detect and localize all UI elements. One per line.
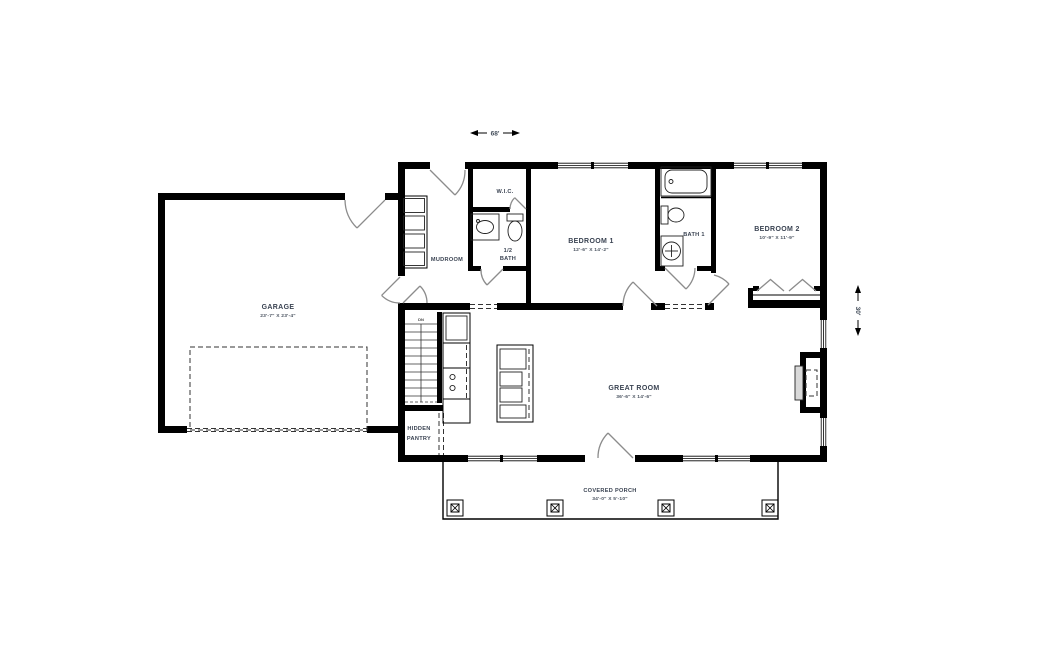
doors bbox=[345, 170, 816, 458]
kitchen-island bbox=[497, 345, 533, 422]
wic-label: W.I.C. bbox=[496, 189, 513, 195]
porch-post bbox=[658, 500, 674, 516]
house-exterior-walls bbox=[398, 162, 827, 462]
half-bath-label-line1: 1/2 bbox=[504, 248, 513, 254]
bedroom1-label: BEDROOM 1 bbox=[568, 238, 614, 245]
porch-post bbox=[547, 500, 563, 516]
bedroom2-size: 10'-9" X 11'-9" bbox=[759, 235, 794, 241]
width-dimension: 68' bbox=[470, 130, 520, 138]
great-room-label: GREAT ROOM bbox=[608, 385, 659, 392]
floor-plan: DN bbox=[0, 0, 1042, 670]
covered-porch-size: 34'-0" X 5'-10" bbox=[592, 496, 628, 502]
bedroom2-label: BEDROOM 2 bbox=[754, 226, 800, 233]
bedroom1-size: 12'-6" X 14'-2" bbox=[573, 247, 609, 253]
porch-post bbox=[762, 500, 778, 516]
garage-label: GARAGE bbox=[262, 304, 295, 311]
garage-walls bbox=[158, 193, 400, 433]
floor-plan-drawing: DN bbox=[0, 0, 1042, 670]
overall-width-label: 68' bbox=[491, 131, 500, 138]
half-bath-fixtures bbox=[471, 214, 523, 241]
bath1-label: BATH 1 bbox=[683, 232, 705, 238]
stairs bbox=[405, 324, 437, 402]
great-room-size: 36'-6" X 14'-6" bbox=[616, 394, 652, 400]
half-bath-label-line2: BATH bbox=[500, 256, 516, 262]
interior-walls bbox=[403, 169, 827, 455]
garage-parking-pad bbox=[190, 347, 367, 430]
hidden-pantry-label-line1: HIDDEN bbox=[407, 426, 430, 432]
bath1-fixtures bbox=[661, 167, 711, 266]
garage-size: 23'-7" X 23'-4" bbox=[260, 313, 296, 319]
covered-porch-label: COVERED PORCH bbox=[583, 488, 636, 494]
windows bbox=[468, 162, 826, 462]
depth-dimension: 30' bbox=[854, 285, 861, 336]
mudroom-label: MUDROOM bbox=[431, 257, 463, 263]
fireplace bbox=[795, 352, 822, 413]
hidden-pantry-label-line2: PANTRY bbox=[407, 436, 431, 442]
kitchen-counter bbox=[443, 313, 470, 423]
stairs-dn-label: DN bbox=[418, 317, 424, 322]
porch-post bbox=[447, 500, 463, 516]
overall-depth-label: 30' bbox=[854, 307, 861, 316]
